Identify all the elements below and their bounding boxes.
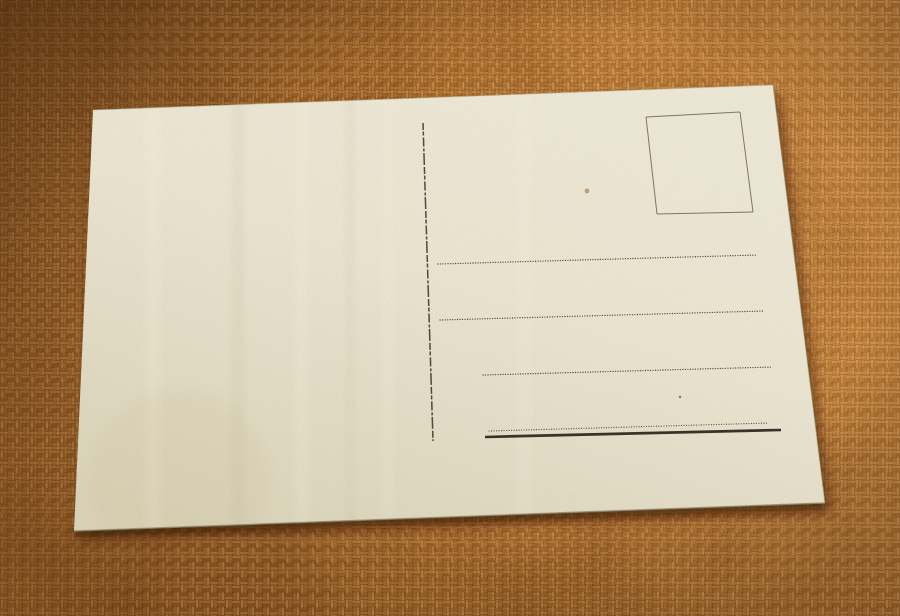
photo-scene <box>0 0 900 616</box>
postcard-photo <box>0 0 900 616</box>
photo-grain <box>0 0 900 616</box>
